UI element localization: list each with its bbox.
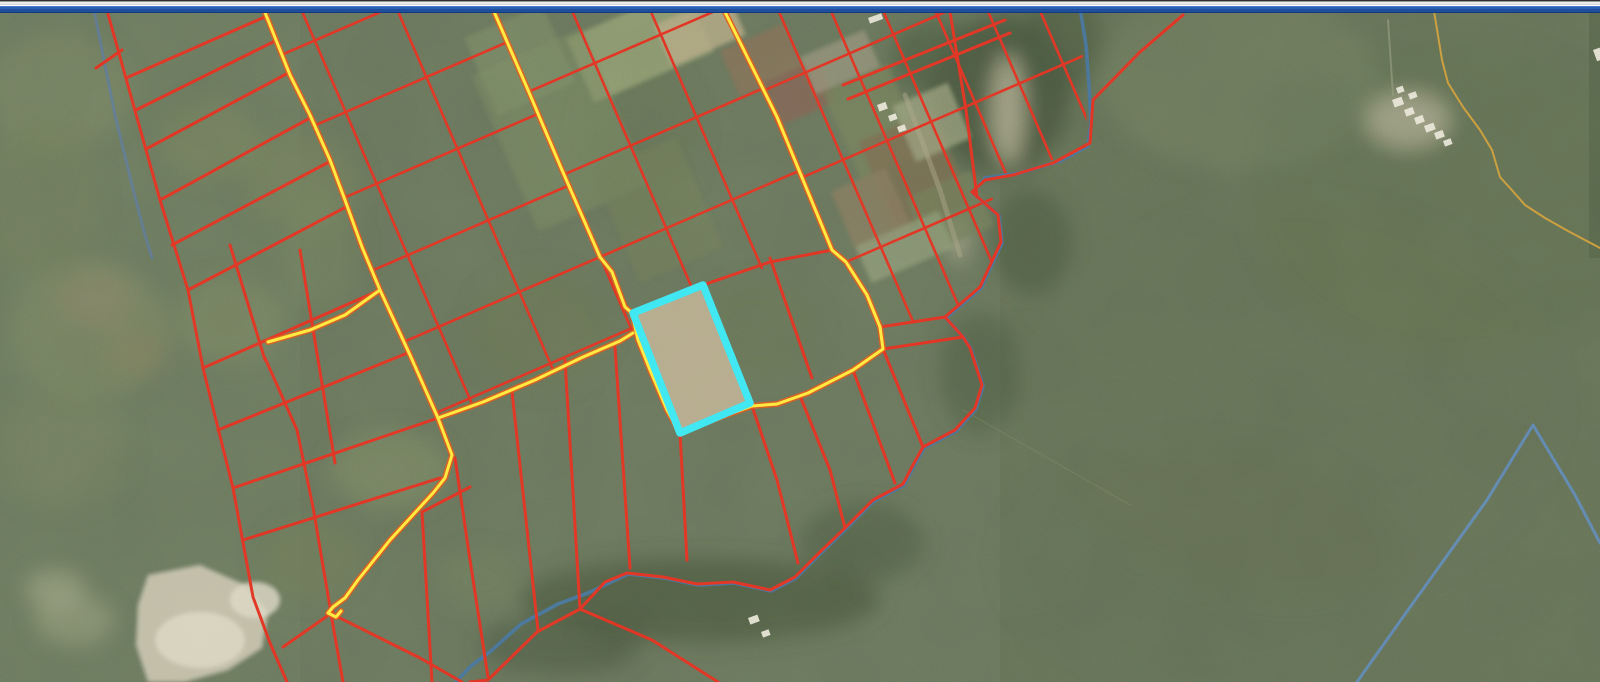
map-viewport[interactable] [0,0,1600,682]
satellite-mottle-overlay [0,13,1600,682]
satellite-map-canvas[interactable] [0,0,1600,682]
window-top-edge [0,0,1600,13]
